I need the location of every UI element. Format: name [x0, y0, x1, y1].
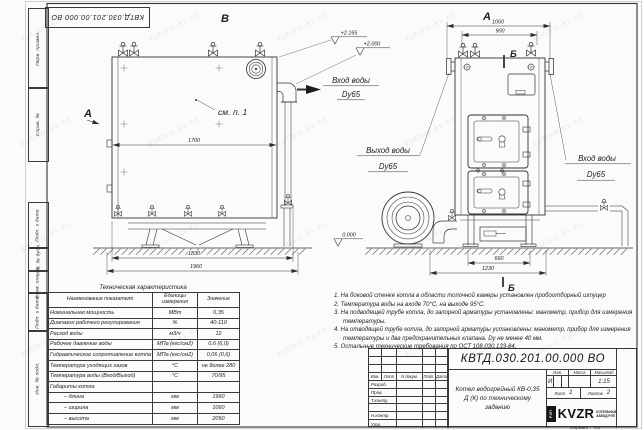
- blower-duct: [433, 221, 457, 243]
- note-1: 1. На боковой стенке котла в области топ…: [334, 292, 635, 301]
- dim-900: 900: [496, 29, 505, 35]
- logo-emblem-icon: РЭП: [547, 406, 556, 422]
- note-3: 3. На подводящей трубе котла, до запорно…: [334, 309, 635, 326]
- spec-cell: мм: [153, 413, 198, 424]
- scale-value: 1:15: [598, 379, 610, 385]
- scale-label: Масштаб: [591, 369, 617, 376]
- note-4: 4. На отводящей трубе котла, до запорной…: [334, 326, 635, 343]
- upper-door: [468, 115, 530, 168]
- stamp-vzam-inv: Взам. инв. №: [28, 270, 49, 294]
- doc-number-top-box: КВТД.030.201.00.000 ВО: [45, 7, 150, 28]
- spec-cell: °С: [153, 360, 198, 371]
- spec-cell: – ширина: [48, 403, 153, 414]
- title-block-strip: [616, 349, 638, 428]
- spec-cell: [198, 382, 240, 393]
- inlet-flange: [545, 59, 554, 75]
- stamp-label: Инв. № подл.: [36, 362, 41, 394]
- base-frame: [460, 215, 540, 247]
- doc-number-cell: КВТД.030.201.00.000 ВО: [448, 349, 617, 370]
- logo-company-name: КОТЕЛЬНЫЙ ЗАВОД РЭП: [596, 410, 617, 418]
- dim-1830: 1830: [188, 251, 200, 257]
- row-ncontrol: Н.контр.: [369, 412, 397, 420]
- spec-cell: 12: [198, 329, 240, 340]
- spec-cell: Гидравлическое сопротивление котла: [48, 350, 153, 361]
- inlet-dn-mid: Dy65: [342, 90, 361, 99]
- inlet-label-mid: Вход воды: [332, 76, 370, 85]
- technical-notes: 1. На боковой стенке котла в области топ…: [334, 292, 635, 352]
- logo-company-line2: ЗАВОД РЭП: [596, 414, 617, 418]
- col-list: Лист: [382, 373, 397, 381]
- spec-cell: мм: [153, 403, 198, 414]
- spec-cell: Рабочее давление воды: [48, 339, 153, 350]
- spec-cell: МВт: [153, 308, 198, 319]
- doc-name-cell: Котел водогрейный КВ-0,35 Д (К) по техни…: [448, 369, 546, 428]
- spec-cell: 1060: [198, 403, 240, 414]
- stamp-sprav-no: Справ. №: [28, 87, 49, 162]
- stamp-label: Подп. и дата: [36, 209, 41, 241]
- dim-1230: 1230: [482, 266, 494, 272]
- lit-label: Лит.: [547, 369, 569, 376]
- row-checked: Пров.: [369, 389, 397, 397]
- col-izm: Изм.: [369, 373, 382, 381]
- elev-0000: 0.000: [342, 233, 356, 239]
- spec-col-units: Единицы измерения: [153, 293, 198, 308]
- spec-cell: Температура воды (Вход/Выход): [48, 371, 153, 382]
- mass-label: Масса: [569, 369, 591, 376]
- spec-cell: %: [153, 318, 198, 329]
- stamp-label: Подп. и дата: [36, 296, 41, 328]
- sheets-label: Листов: [588, 391, 603, 396]
- outlet-dn: Dy65: [379, 162, 398, 171]
- dim-1960: 1960: [190, 264, 202, 270]
- elev-2000: +2.000: [364, 42, 381, 48]
- view-label-a-arrow-text: А: [83, 108, 92, 120]
- logo-company-line1: КОТЕЛЬНЫЙ: [596, 410, 617, 414]
- rear-pipe: [277, 83, 297, 246]
- spec-cell: МПа (кгс/см2): [153, 339, 198, 350]
- stamp-label: Справ. №: [36, 113, 41, 136]
- sheets-value: 2: [607, 390, 610, 396]
- inlet-dn-right: Dy65: [587, 170, 606, 179]
- spec-cell: 40-110: [198, 318, 240, 329]
- doc-number-rotated: КВТД.030.201.00.000 ВО: [51, 13, 144, 22]
- spec-cell: Диапазон рабочего регулирования: [48, 318, 153, 329]
- spec-cell: – длина: [48, 392, 153, 403]
- spec-cell: °С: [153, 371, 198, 382]
- dim-1060: 1060: [492, 20, 504, 26]
- elev-2165: +2.165: [341, 31, 359, 37]
- dim-1700: 1700: [188, 138, 200, 144]
- col-date: Дата: [436, 373, 448, 381]
- spec-col-name: Наименование показателя: [48, 293, 153, 308]
- flow-arrow-icon: [297, 85, 321, 94]
- spec-cell: Габариты котла: [48, 382, 153, 393]
- spec-cell: Номинальная мощность: [48, 308, 153, 319]
- spec-table: Наименование показателя Единицы измерени…: [47, 292, 240, 425]
- view-label-a: А: [482, 11, 491, 23]
- spec-cell: – высота: [48, 413, 153, 424]
- sheet-value: 1: [569, 390, 572, 396]
- spec-cell: МПа (кгс/см2): [153, 350, 198, 361]
- stamp-label: Перв. примен.: [36, 31, 41, 66]
- sheet-label: Лист: [555, 391, 566, 396]
- spec-cell: 0,35: [198, 308, 240, 319]
- row-approved: Утв.: [369, 420, 397, 428]
- spec-cell: 1960: [198, 392, 240, 403]
- dim-660: 660: [495, 256, 504, 262]
- stamp-podp-data-2: Подп. и дата: [28, 292, 49, 332]
- outlet-flange: [447, 59, 456, 75]
- blower-fan: [382, 192, 434, 247]
- pipe-labels: Вход воды Dy65 Выход воды Dy65 Вход воды…: [297, 73, 631, 180]
- logo-emblem-text: РЭП: [549, 409, 553, 417]
- note-2: 2. Температура воды на входе 70°С, на вы…: [334, 301, 635, 310]
- elevation-marks: +2.165 +2.000 0.000: [279, 31, 390, 247]
- lower-door: [468, 171, 530, 214]
- spec-cell: мм: [153, 392, 198, 403]
- support-frame: [128, 223, 266, 248]
- spec-cell: Температура уходящих газов: [48, 360, 153, 371]
- spec-cell: 0,6 (6,0): [198, 339, 240, 350]
- row-tcontrol: Т.контр.: [369, 397, 397, 405]
- drawing-sheet: kotlam-kv.kzkotlam-kv.kzkotlam-kv.kzkotl…: [0, 0, 644, 430]
- col-sign: Подп.: [423, 373, 436, 381]
- logo-kvzr-text: KVZR: [558, 406, 595, 421]
- title-block-grid: Изм. Лист N докум. Подп. Дата Разраб. Пр…: [369, 349, 448, 428]
- spec-cell: не более 280: [198, 360, 240, 371]
- spec-cell: 70/95: [198, 371, 240, 382]
- format-note: Формат А3: [570, 425, 600, 430]
- title-block: Изм. Лист N докум. Подп. Дата Разраб. Пр…: [368, 348, 637, 427]
- col-doc: N докум.: [397, 373, 423, 381]
- title-block-right: Лит. Масса Масштаб И 1:15 Лист 1 Листов …: [546, 369, 617, 428]
- view-label-v: В: [221, 13, 229, 25]
- top-port: [247, 60, 266, 79]
- side-view: В А: [83, 13, 312, 275]
- lit-value: И: [548, 379, 552, 385]
- spec-col-value: Значение: [198, 293, 240, 308]
- see-note-label: см. п. 1: [218, 107, 247, 117]
- stamp-inv-podl: Инв. № подл.: [28, 330, 49, 427]
- outlet-label: Выход воды: [366, 146, 410, 155]
- spec-cell: 0,06 (0,6): [198, 350, 240, 361]
- row-developed: Разраб.: [369, 381, 397, 389]
- spec-cell: м3/ч: [153, 329, 198, 340]
- spec-cell: [153, 382, 198, 393]
- stamp-podp-data-1: Подп. и дата: [28, 202, 49, 249]
- drain-pipe-right: [545, 206, 628, 246]
- company-logo: РЭП KVZR КОТЕЛЬНЫЙ ЗАВОД РЭП: [547, 399, 617, 428]
- spec-table-title: Техническая характеристика: [47, 284, 239, 291]
- spec-cell: Расход воды: [48, 329, 153, 340]
- inlet-label-right: Вход воды: [578, 154, 616, 163]
- spec-cell: 2050: [198, 413, 240, 424]
